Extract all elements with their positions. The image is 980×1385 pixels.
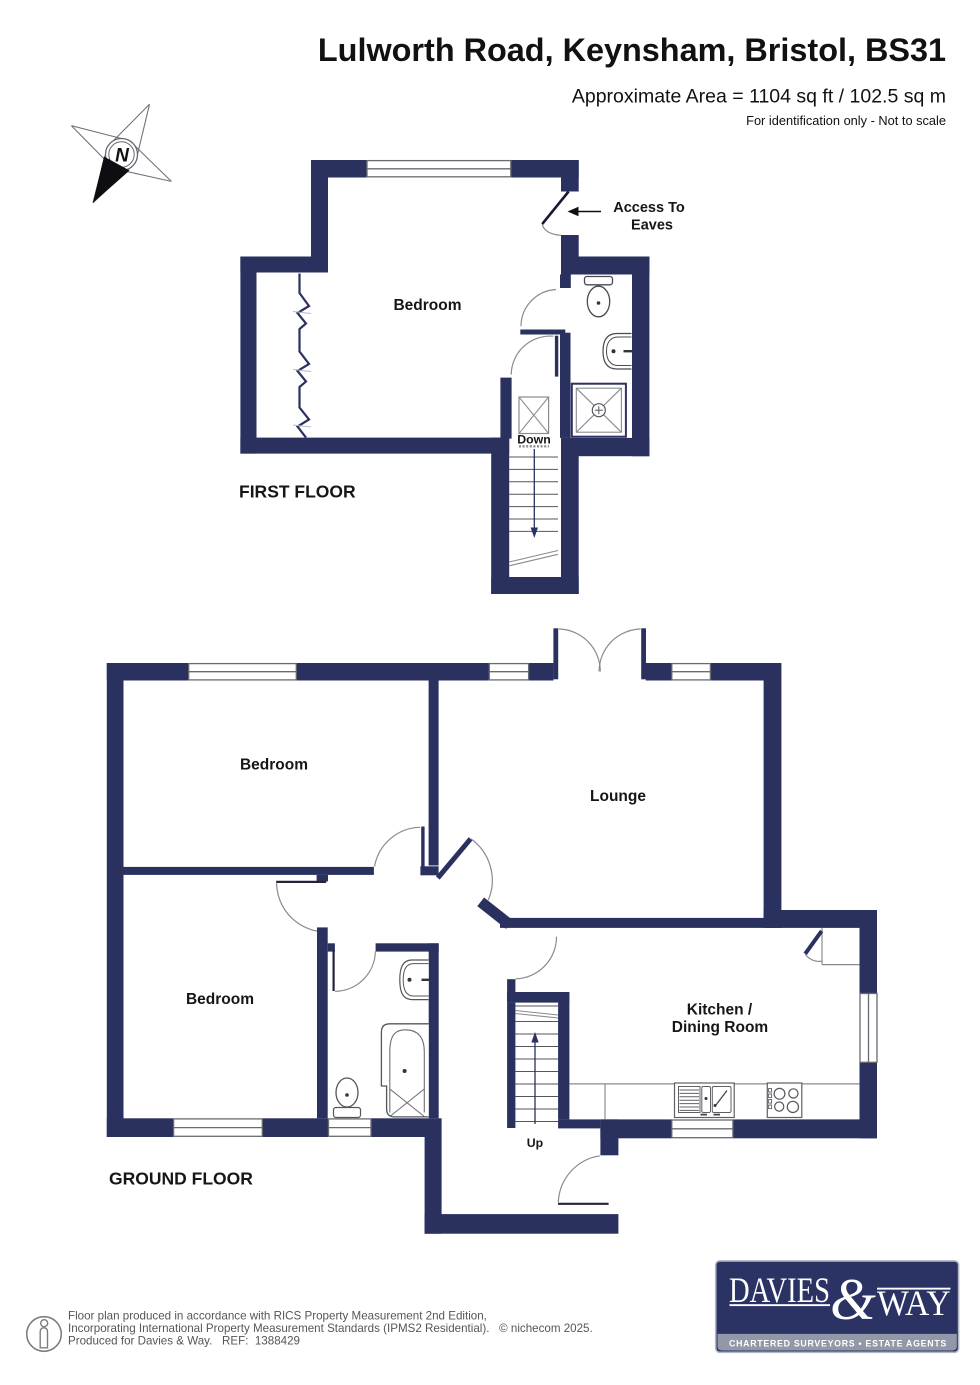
svg-text:Lounge: Lounge — [590, 788, 646, 805]
svg-text:Dining Room: Dining Room — [672, 1019, 768, 1036]
svg-text:Up: Up — [527, 1136, 543, 1150]
svg-text:Lulworth Road, Keynsham, Brist: Lulworth Road, Keynsham, Bristol, BS31 — [318, 32, 946, 68]
svg-text:FIRST FLOOR: FIRST FLOOR — [239, 482, 356, 502]
svg-text:Down: Down — [517, 433, 550, 447]
svg-text:N: N — [115, 146, 130, 167]
svg-text:Bedroom: Bedroom — [186, 991, 254, 1008]
svg-text:WAY: WAY — [877, 1283, 951, 1323]
svg-text:DAVIES: DAVIES — [729, 1270, 830, 1310]
svg-text:Kitchen /: Kitchen / — [687, 1002, 753, 1019]
svg-text:Floor plan produced in accorda: Floor plan produced in accordance with R… — [68, 1310, 487, 1323]
svg-text:Eaves: Eaves — [631, 218, 673, 234]
svg-text:CHARTERED SURVEYORS • ESTATE A: CHARTERED SURVEYORS • ESTATE AGENTS — [729, 1338, 947, 1349]
svg-text:GROUND FLOOR: GROUND FLOOR — [109, 1169, 253, 1189]
svg-text:Incorporating International Pr: Incorporating International Property Mea… — [68, 1322, 593, 1335]
svg-text:&: & — [830, 1266, 876, 1332]
svg-text:For identification only - Not: For identification only - Not to scale — [746, 113, 946, 128]
svg-text:Access To: Access To — [613, 200, 685, 216]
svg-text:Produced for Davies & Way. R: Produced for Davies & Way. REF: 1388429 — [68, 1335, 300, 1348]
svg-text:Bedroom: Bedroom — [393, 297, 461, 314]
svg-text:Approximate Area = 1104 sq ft: Approximate Area = 1104 sq ft / 102.5 sq… — [572, 86, 946, 108]
svg-text:Bedroom: Bedroom — [240, 757, 308, 774]
